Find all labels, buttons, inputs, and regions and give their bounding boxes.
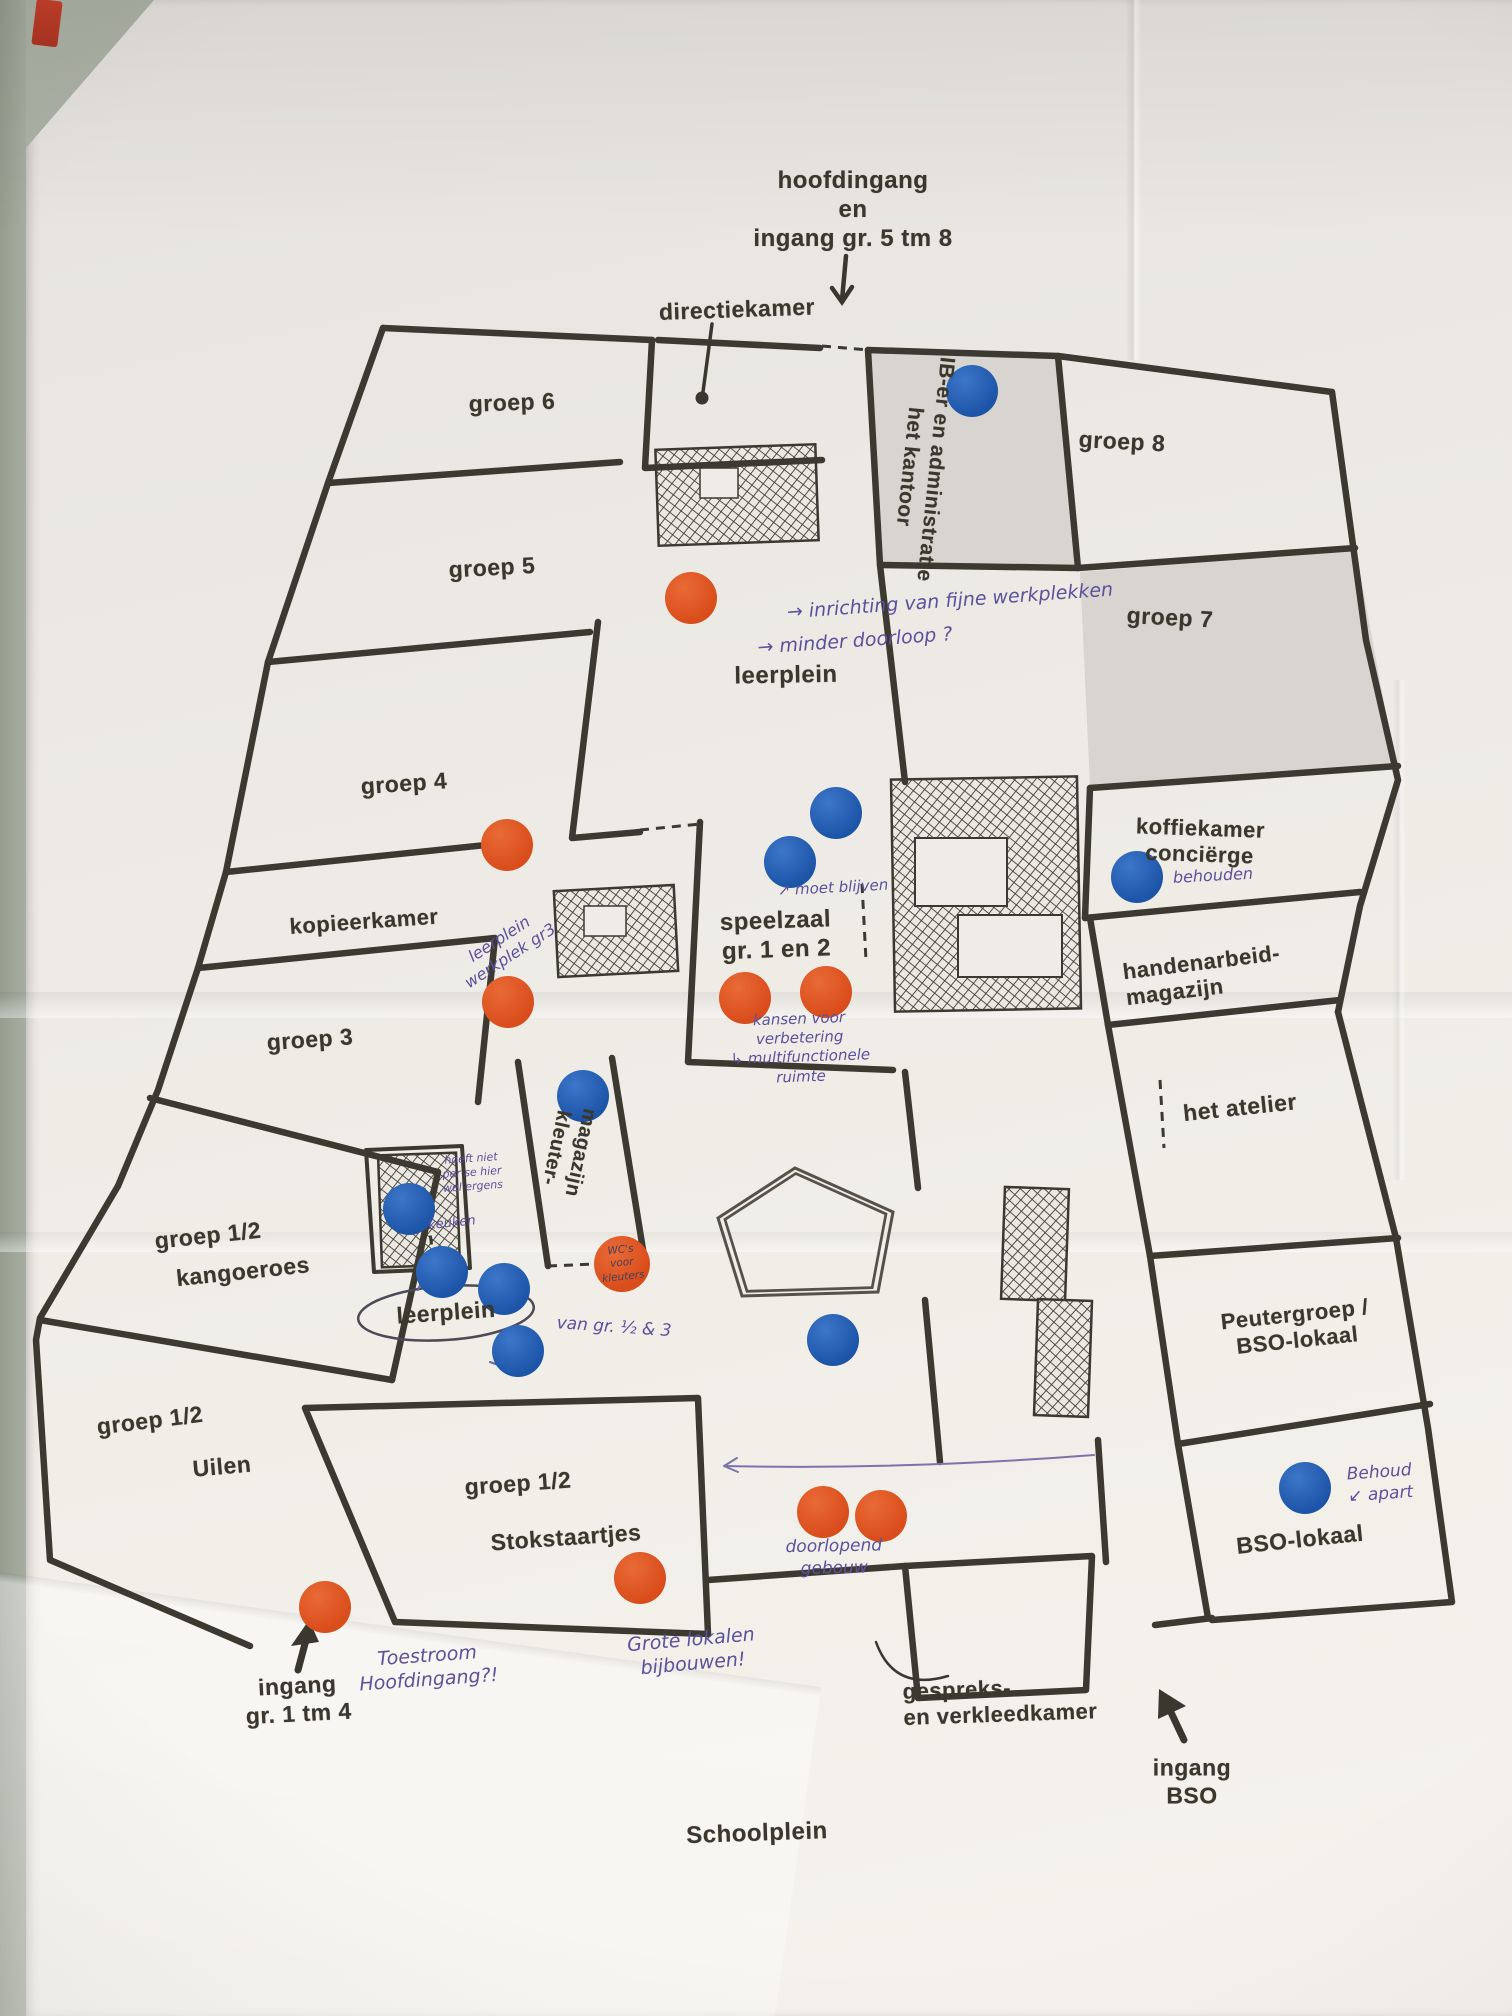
note-wc-kleuters: WC's voor kleuters (599, 1242, 645, 1287)
note-hoeft-niet: hoeft niet per se hier wel ergens (441, 1150, 504, 1196)
photo-of-floor-plan: hoofdingang en ingang gr. 5 tm 8directie… (0, 0, 1512, 2016)
note-keuken: keuken (427, 1213, 476, 1235)
handwritten-notes-layer: → inrichting van fijne werkplekken→ mind… (0, 0, 1512, 2016)
note-doorlopend-gebouw: doorlopend gebouw (785, 1535, 882, 1580)
note-leerplein-werkplek: leerplein werkplek gr3 (450, 902, 560, 993)
note-minder-doorloop: → minder doorloop ? (757, 622, 953, 660)
note-kansen-verbetering: kansen voor verbetering ↳ multifunctione… (729, 1007, 871, 1089)
note-toestroom: Toestroom Hoofdingang?! (357, 1639, 499, 1697)
note-behouden: behouden (1172, 864, 1253, 889)
note-moet-blijven: ↗ moet blijven (777, 876, 888, 901)
note-grote-lokalen: Grote lokalen bijbouwen! (626, 1622, 758, 1682)
note-behoud-apart: Behoud ↙ apart (1346, 1460, 1414, 1508)
note-van-groep: van gr. ½ & 3 (556, 1313, 672, 1343)
note-inrichting-werkplekken: → inrichting van fijne werkplekken (786, 577, 1114, 624)
